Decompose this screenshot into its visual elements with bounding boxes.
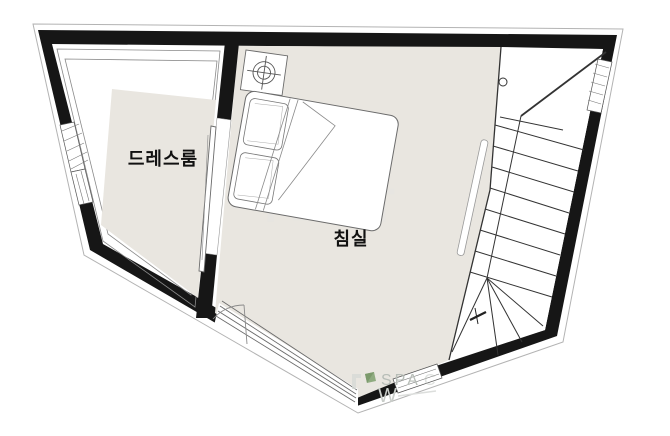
nightstand <box>240 50 287 95</box>
stair-newel-circle <box>499 78 507 86</box>
watermark-brand-text-faint: C <box>424 372 439 389</box>
watermark-brand-w: W <box>378 385 397 407</box>
room-label-dressroom: 드레스룸 <box>128 149 198 169</box>
room-label-bedroom: 침실 <box>333 229 368 249</box>
floor-plan-page: 더존하 <box>0 0 670 436</box>
dressroom-floor <box>101 89 216 298</box>
watermark-brand-underline <box>398 391 436 396</box>
floor-plan-canvas: 더존하 <box>0 0 670 436</box>
window-left <box>60 122 93 205</box>
